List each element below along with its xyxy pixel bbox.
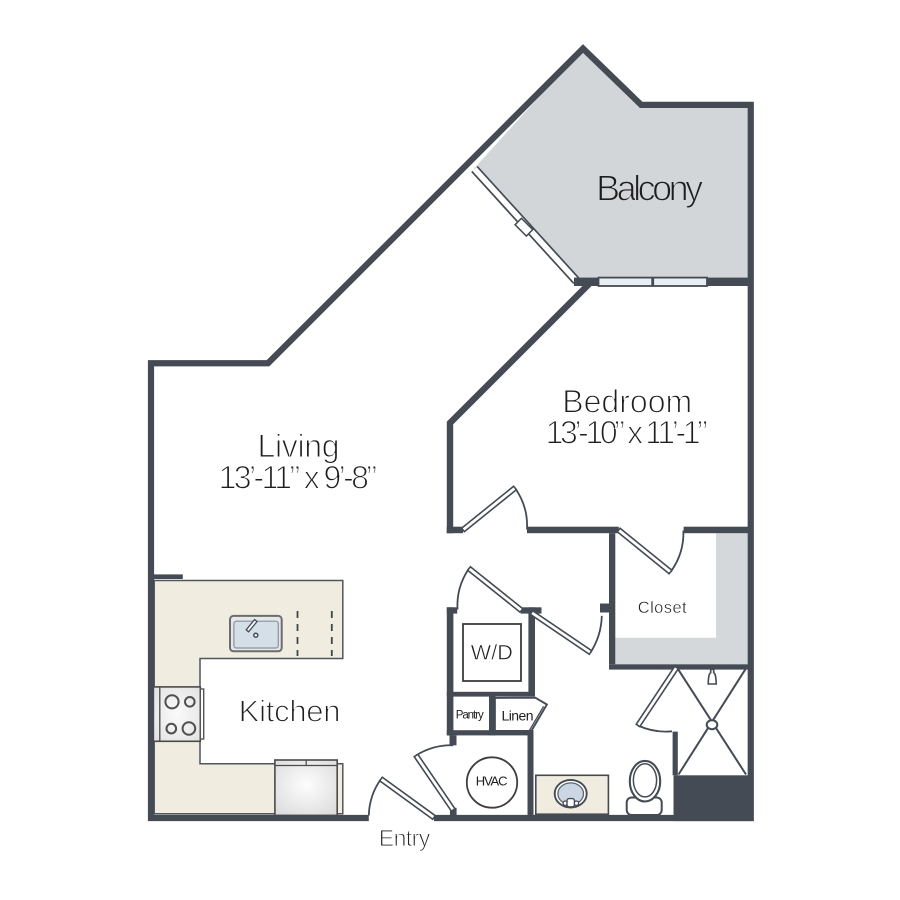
svg-text:Balcony: Balcony (596, 167, 703, 208)
svg-text:Kitchen: Kitchen (239, 693, 341, 728)
svg-text:13’-10” x 11’-1”: 13’-10” x 11’-1” (546, 414, 708, 450)
svg-text:Closet: Closet (638, 599, 687, 617)
svg-text:HVAC: HVAC (476, 773, 508, 788)
svg-text:Linen: Linen (502, 708, 534, 724)
svg-text:13’-11” x 9’-8”: 13’-11” x 9’-8” (219, 460, 377, 496)
svg-text:W/D: W/D (471, 641, 513, 665)
svg-text:Entry: Entry (379, 825, 431, 851)
svg-text:Pantry: Pantry (456, 709, 484, 721)
